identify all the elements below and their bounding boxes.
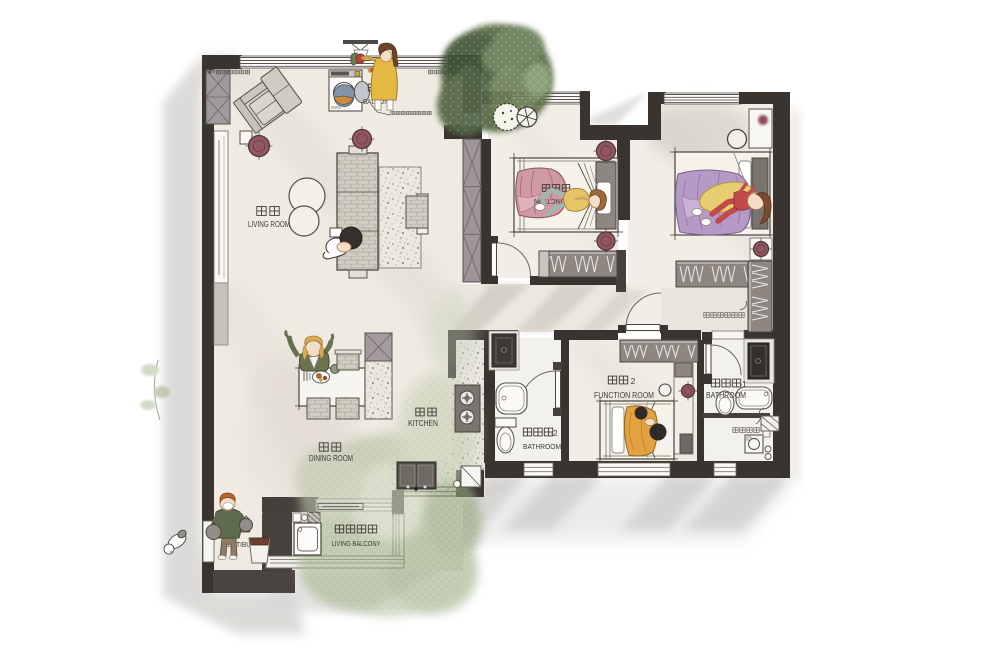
svg-text:-1: -1 [739,380,747,389]
svg-text:LIVING ROOM: LIVING ROOM [248,220,290,229]
svg-text:2: 2 [631,376,636,386]
svg-text:KITCHEN: KITCHEN [408,419,438,428]
svg-text:DINING ROOM: DINING ROOM [309,454,353,463]
svg-text:BATHROOM: BATHROOM [706,391,746,400]
svg-text:LIVING BALCONY: LIVING BALCONY [332,539,381,548]
svg-text:-2: -2 [550,429,558,438]
svg-text:FUNCTION ROOM: FUNCTION ROOM [594,391,654,400]
svg-text:BATHROOM: BATHROOM [523,442,561,451]
